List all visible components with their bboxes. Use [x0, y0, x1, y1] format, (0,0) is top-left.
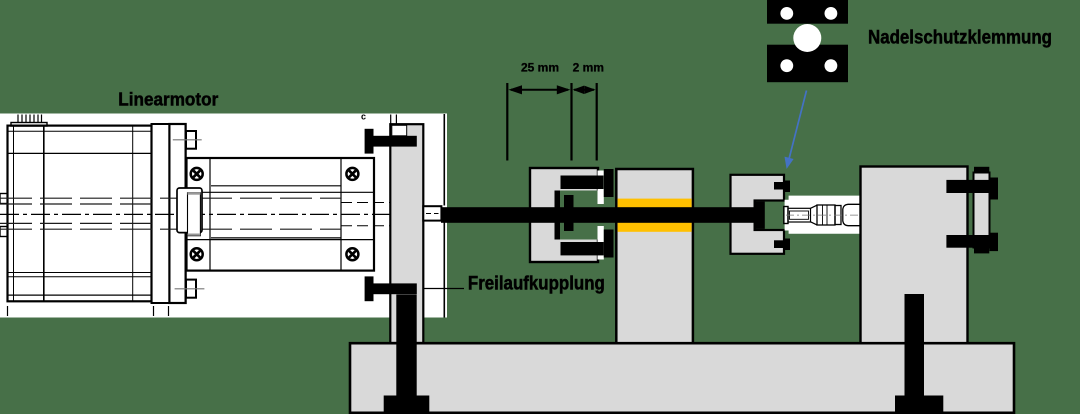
svg-text:c: c: [361, 112, 366, 122]
svg-text:Freilaufkupplung: Freilaufkupplung: [468, 272, 605, 293]
svg-text:25 mm: 25 mm: [521, 61, 559, 75]
svg-text:2 mm: 2 mm: [573, 61, 604, 75]
svg-text:Nadelschutzklemmung: Nadelschutzklemmung: [868, 26, 1052, 47]
svg-text:Linearmotor: Linearmotor: [118, 89, 218, 110]
